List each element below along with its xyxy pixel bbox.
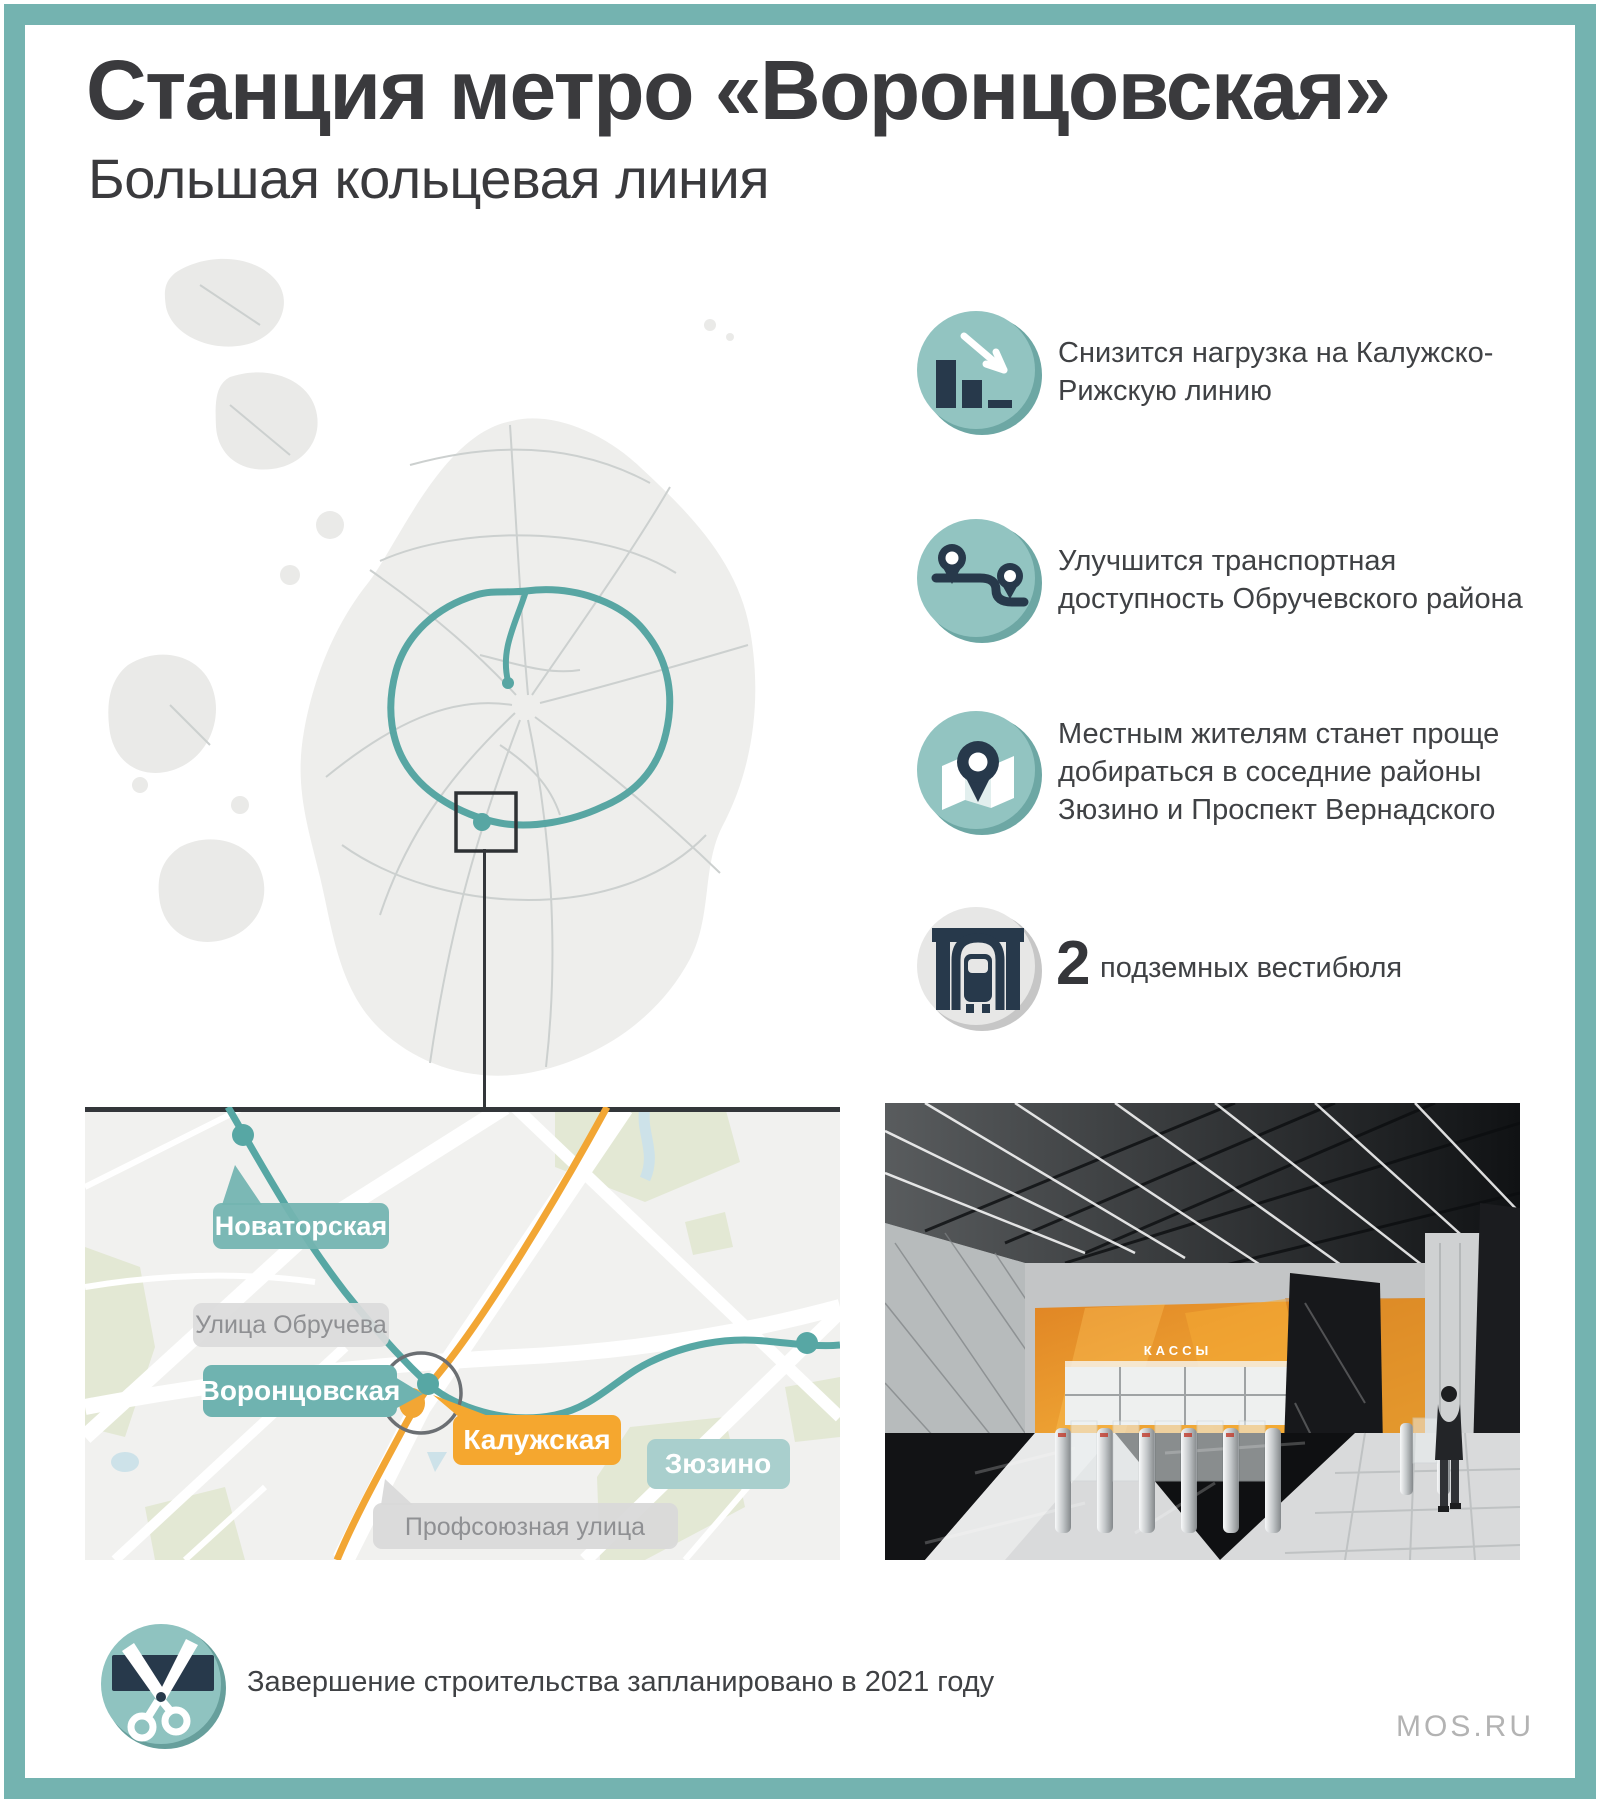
kassy-sign: КАССЫ	[1144, 1343, 1213, 1358]
map-connector-line	[483, 849, 486, 1107]
station-render-photo: КАССЫ	[885, 1103, 1520, 1560]
vorontsovskaya-overview-dot	[473, 813, 491, 831]
bar-chart-decline-icon	[914, 308, 1042, 436]
station-label-zyuzino: Зюзино	[647, 1439, 790, 1489]
moscow-overview-map	[80, 225, 780, 1105]
route-pins-icon	[914, 516, 1042, 644]
station-label-vorontsovskaya: Воронцовская	[200, 1365, 423, 1417]
moscow-city-shape	[301, 418, 756, 1075]
street-label-obrucheva: Улица Обручева	[193, 1303, 389, 1347]
completion-note: Завершение строительства запланировано в…	[247, 1666, 994, 1699]
zyuzino-direction-dot	[796, 1332, 818, 1354]
map-top-border	[85, 1107, 840, 1112]
benefit-text-2: Улучшится транспортная доступность Обруч…	[1058, 542, 1523, 618]
detail-metro-map: Новаторская Улица Обручева Воронцовская …	[85, 1107, 840, 1560]
page-title: Станция метро «Воронцовская»	[86, 42, 1389, 139]
tunnel-train-icon	[914, 904, 1042, 1032]
infographic-page: Станция метро «Воронцовская» Большая кол…	[0, 0, 1600, 1803]
mos-ru-logo: MOS.RU	[1396, 1710, 1534, 1744]
svg-text:Воронцовская: Воронцовская	[200, 1375, 401, 1406]
scissors-ribbon-icon	[97, 1620, 227, 1750]
benefit-text-1: Снизится нагрузка на Калужско- Рижскую л…	[1058, 334, 1493, 410]
benefit-text-3: Местным жителям станет проще добираться …	[1058, 715, 1499, 829]
svg-text:Зюзино: Зюзино	[665, 1448, 772, 1479]
vestibule-count: 2	[1056, 928, 1090, 999]
page-subtitle: Большая кольцевая линия	[88, 146, 769, 211]
novatorskaya-dot	[232, 1124, 254, 1146]
svg-text:Калужская: Калужская	[463, 1424, 610, 1455]
svg-text:Новаторская: Новаторская	[215, 1211, 387, 1241]
map-pin-icon	[914, 708, 1042, 836]
vestibule-label: подземных вестибюля	[1100, 952, 1402, 985]
svg-text:Улица Обручева: Улица Обручева	[195, 1311, 387, 1339]
svg-text:Профсоюзная улица: Профсоюзная улица	[405, 1513, 645, 1541]
bkl-spur-end-dot	[502, 677, 514, 689]
